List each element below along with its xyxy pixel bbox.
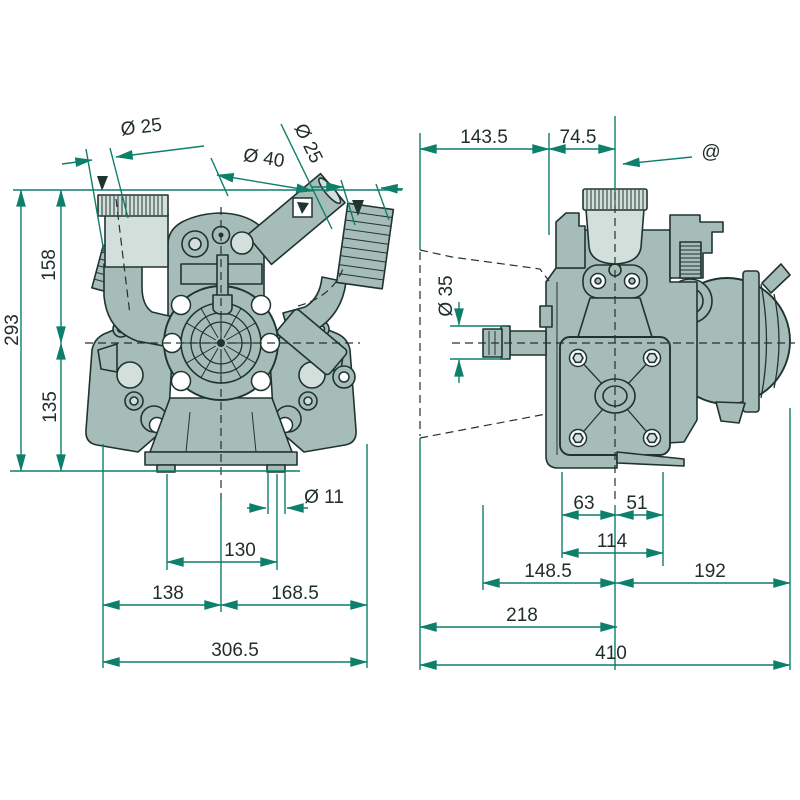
dim-label-at-marker: @ [701, 142, 720, 163]
dim-label-foot-left: 63 [573, 493, 594, 514]
dim-label-width-right: 168.5 [271, 583, 319, 604]
dim-label-span-rear: 192 [694, 561, 726, 582]
ear-right-center [629, 278, 635, 284]
dim-line-d40 [217, 175, 313, 191]
right-pipe-nut-center [339, 372, 349, 382]
side-view: 143.5 74.5 @ Ø 35 63 51 114 148.5 192 21… [420, 116, 795, 670]
dim-label-port-right-dia: Ø 25 [289, 120, 326, 166]
ribbed-tube [680, 242, 701, 278]
front-lug [556, 213, 585, 268]
left-head-port [117, 362, 143, 388]
phantom-contour-bottom [420, 414, 546, 438]
dim-label-foot-right: 51 [626, 493, 647, 514]
ear-left-center [595, 278, 601, 284]
dim-label-shaft-dia: Ø 35 [436, 275, 457, 316]
dome-clamp-plate [743, 271, 759, 412]
shaft-step-block [540, 306, 552, 327]
upper-boss-left-center [189, 238, 201, 250]
dim-label-port-left-dia: Ø 25 [120, 115, 163, 141]
at-leader-arrow [623, 157, 692, 164]
front-view: Ø 25 Ø 40 Ø 25 293 158 135 Ø 11 130 138 … [2, 115, 403, 668]
dim-d25r-arrow-right [381, 188, 403, 189]
right-hose-barb [337, 203, 394, 289]
dim-label-width-total: 410 [595, 643, 627, 664]
dim-d25l-arrow-right [116, 146, 204, 157]
dim-label-slot-dia: Ø 11 [304, 487, 344, 508]
front-view-pump-drawing [85, 173, 393, 500]
dim-label-width-total: 306.5 [211, 640, 259, 661]
dome-bottom-nub [716, 402, 745, 423]
right-head-bolt2-center [304, 397, 312, 405]
left-port-cylinder [105, 214, 168, 267]
left-head-bolt2-center [130, 397, 138, 405]
upper-boss-right [231, 232, 253, 254]
dim-130-extensions [167, 474, 277, 570]
dim-label-width-left: 138 [152, 583, 184, 604]
dim-label-height-lower: 135 [40, 391, 61, 423]
side-view-pump-drawing [420, 189, 795, 503]
flow-marker-triangle-left [97, 176, 108, 191]
drawing-page: Ø 25 Ø 40 Ø 25 293 158 135 Ø 11 130 138 … [0, 0, 800, 800]
dome-prong [762, 264, 790, 293]
dim-label-span-left: 218 [506, 605, 538, 626]
dim-label-span-front: 148.5 [524, 561, 572, 582]
dim-label-height-upper: 158 [39, 249, 60, 281]
dim-label-height-total: 293 [2, 314, 23, 346]
dim-label-offset-left: 143.5 [460, 127, 508, 148]
dim-label-slot-spacing: 130 [224, 540, 256, 561]
center-stem-foot [213, 295, 232, 314]
dim-label-foot-span: 114 [597, 531, 628, 552]
technical-drawing-canvas: Ø 25 Ø 40 Ø 25 293 158 135 Ø 11 130 138 … [0, 0, 800, 800]
dim-label-offset-center: 74.5 [560, 127, 597, 148]
dim-label-port-center-dia: Ø 40 [242, 145, 286, 172]
shaft [510, 331, 546, 355]
